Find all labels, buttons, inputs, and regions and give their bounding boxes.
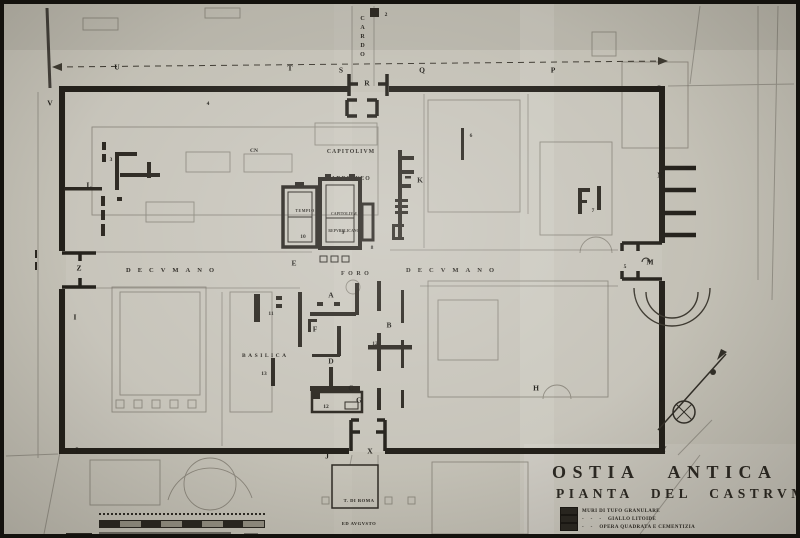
scan-vignette (4, 4, 796, 534)
paper-background: CARDO DECVMANO DECVMANO FORO BASILICA CA… (4, 4, 796, 534)
scanned-plan-page: CARDO DECVMANO DECVMANO FORO BASILICA CA… (0, 0, 800, 538)
